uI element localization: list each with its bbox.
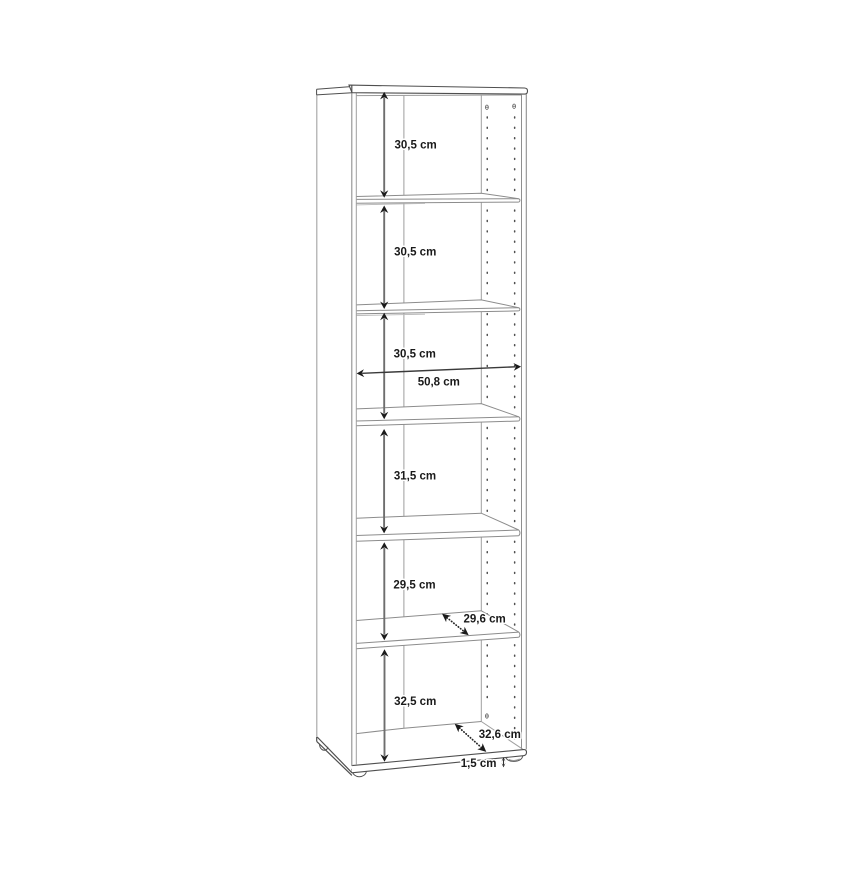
svg-text:30,5 cm: 30,5 cm: [394, 349, 436, 361]
svg-text:50,8 cm: 50,8 cm: [418, 377, 460, 389]
svg-text:32,5 cm: 32,5 cm: [394, 696, 436, 708]
svg-text:29,6 cm: 29,6 cm: [464, 614, 506, 626]
svg-text:31,5 cm: 31,5 cm: [394, 470, 436, 482]
svg-text:30,5 cm: 30,5 cm: [395, 139, 437, 151]
svg-text:1,5 cm: 1,5 cm: [461, 758, 497, 770]
svg-text:29,5 cm: 29,5 cm: [393, 580, 435, 592]
svg-text:30,5 cm: 30,5 cm: [394, 246, 436, 258]
svg-text:32,6 cm: 32,6 cm: [479, 729, 521, 741]
